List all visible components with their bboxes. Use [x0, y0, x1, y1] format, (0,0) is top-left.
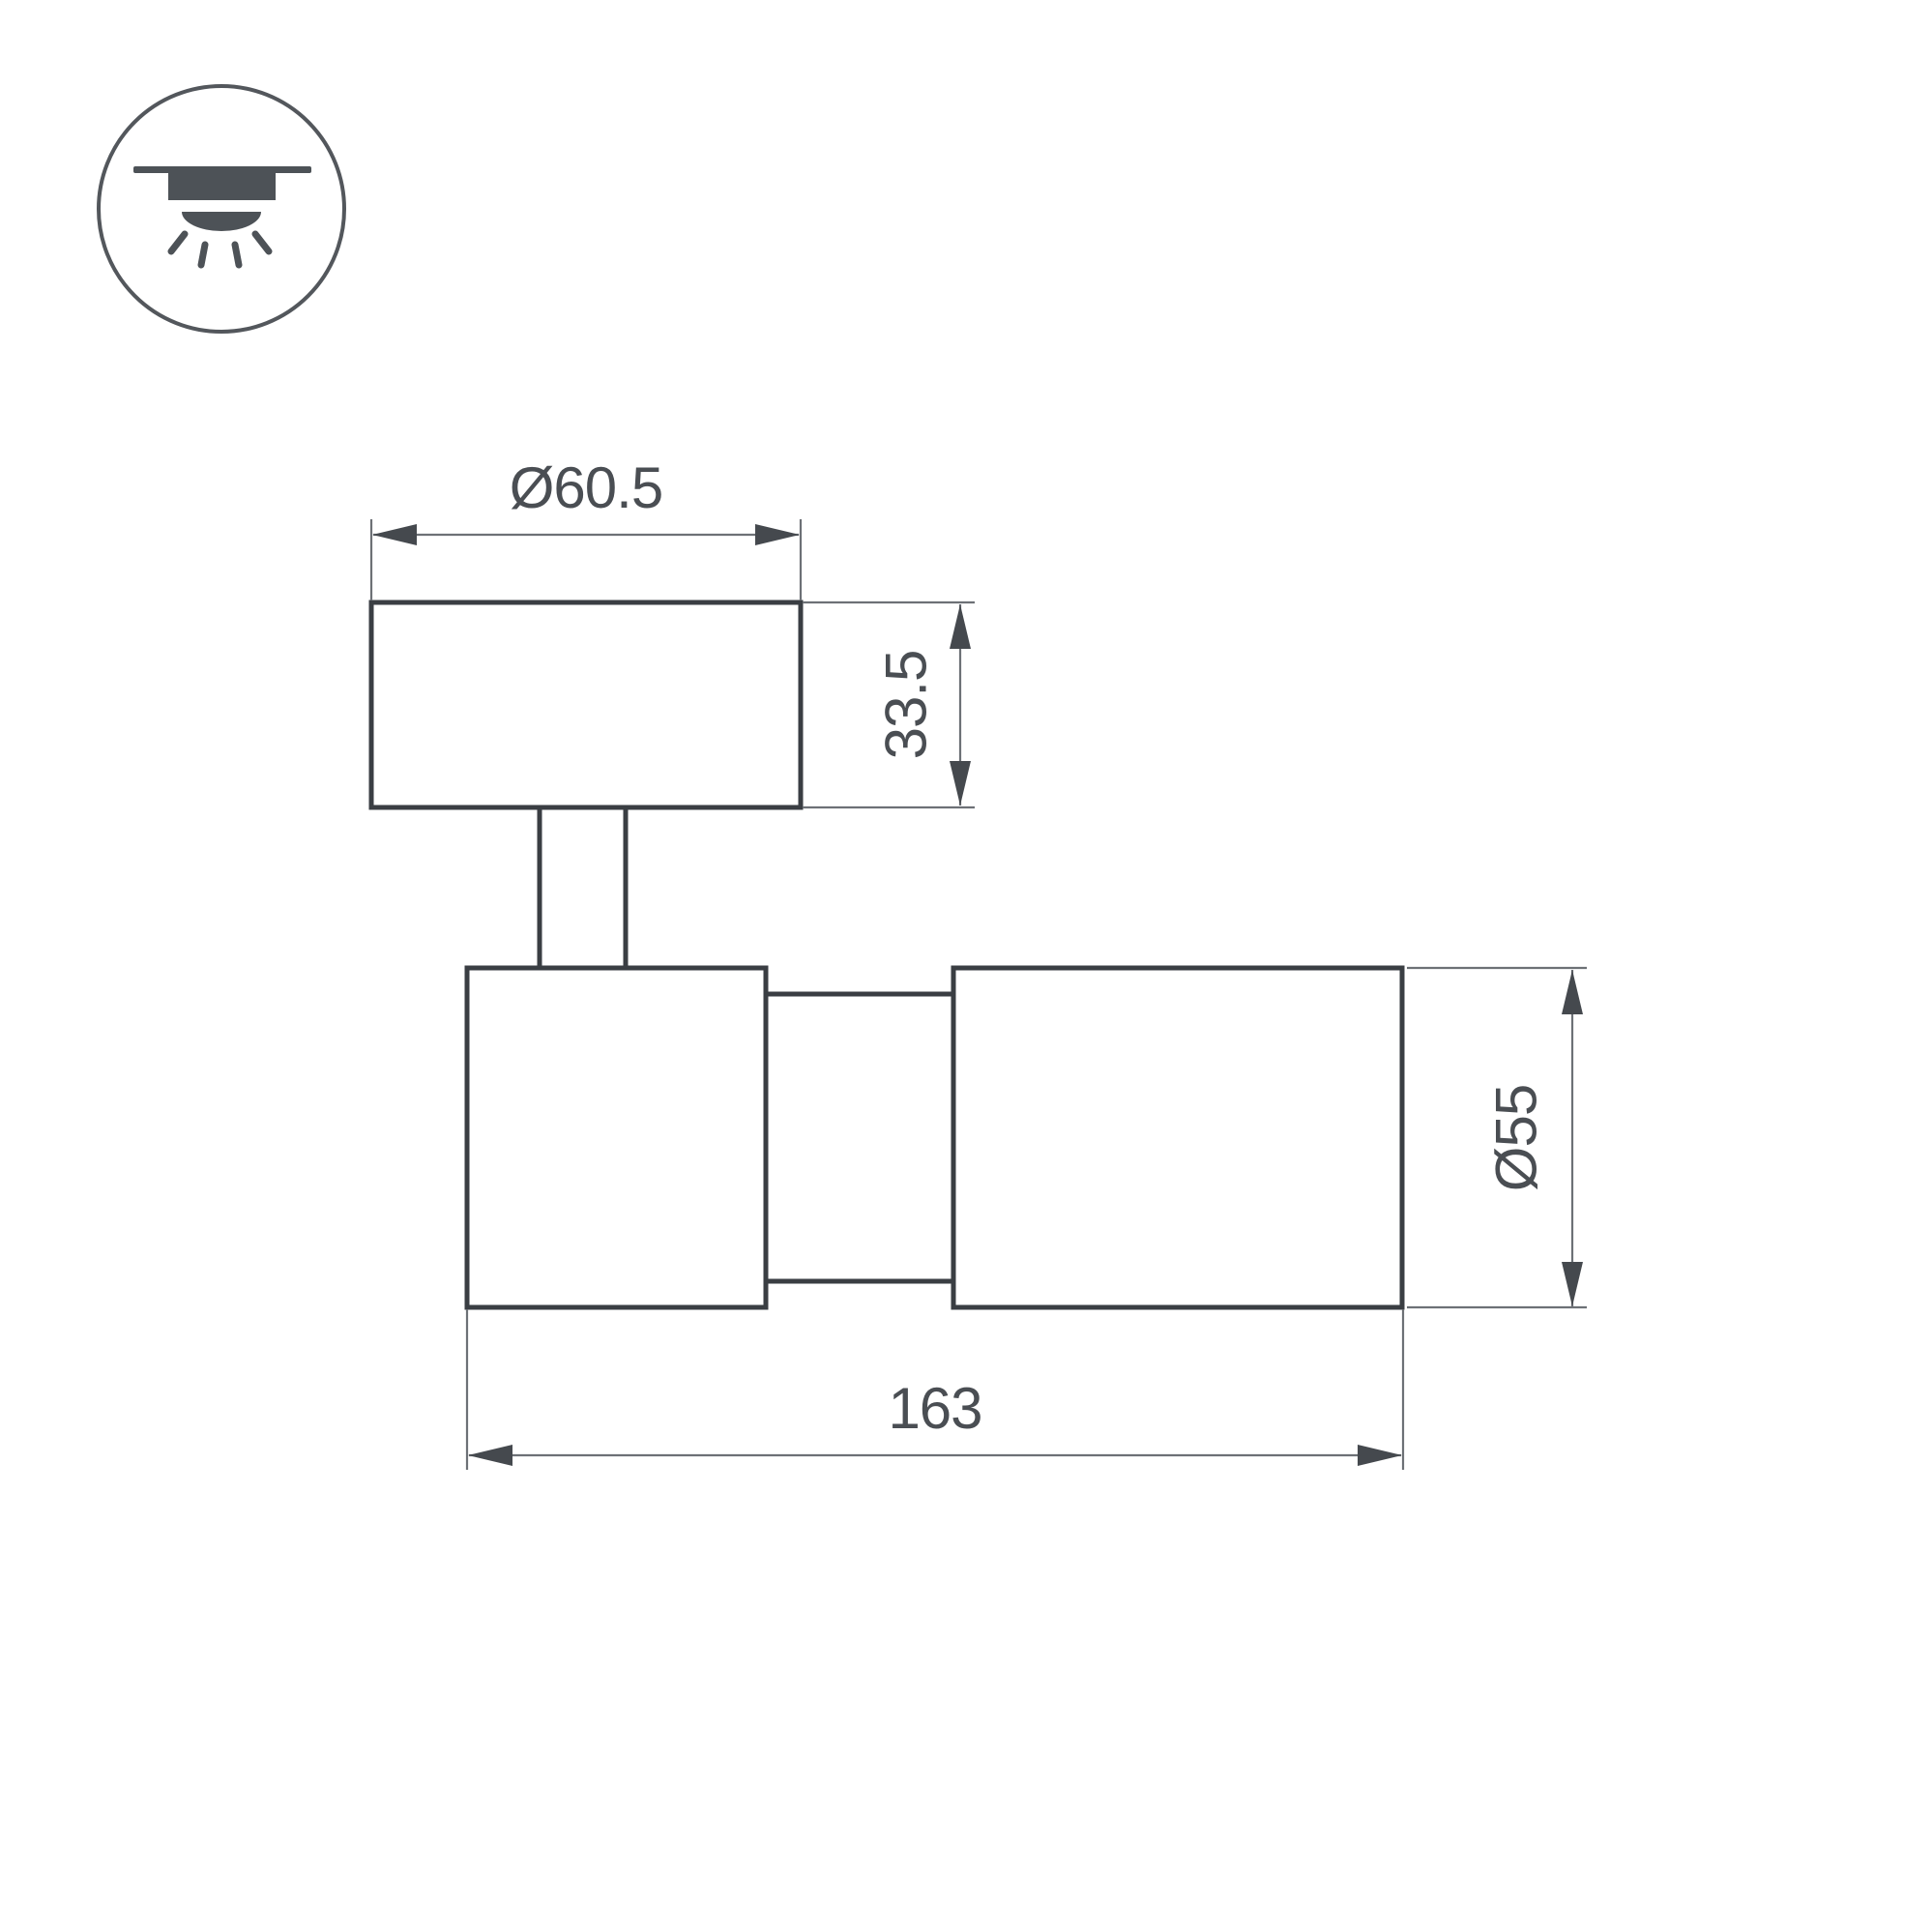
dimension-body-diameter: Ø55: [1407, 968, 1587, 1307]
dim-body-diameter-label: Ø55: [1484, 1085, 1549, 1191]
arrowhead-left: [468, 1445, 512, 1466]
body-rear-rect: [467, 968, 766, 1307]
body-front-rect: [953, 968, 1402, 1307]
dimension-base-diameter: Ø60.5: [371, 455, 801, 600]
arrowhead-right: [755, 524, 800, 545]
technical-drawing-page: Ø60.5 33.5 163 Ø55: [0, 0, 1932, 1932]
dim-body-length-label: 163: [888, 1376, 981, 1441]
icon-mount-body: [168, 173, 276, 200]
dimension-body-length: 163: [467, 1309, 1403, 1470]
arrowhead-down: [1562, 1262, 1583, 1306]
dim-base-diameter-label: Ø60.5: [510, 455, 662, 520]
icon-circle: [99, 86, 344, 332]
mounting-base-rect: [371, 602, 801, 807]
drawing-svg: Ø60.5 33.5 163 Ø55: [0, 0, 1932, 1932]
arrowhead-right: [1358, 1445, 1402, 1466]
dimension-base-height: 33.5: [803, 602, 975, 807]
icon-light-ray-inner-left: [201, 245, 205, 265]
dim-base-height-label: 33.5: [874, 651, 939, 760]
arrowhead-left: [372, 524, 417, 545]
arrowhead-up: [1562, 970, 1583, 1014]
arrowhead-down: [950, 761, 971, 805]
arrowhead-up: [950, 604, 971, 649]
icon-ceiling-bar: [133, 166, 311, 173]
icon-light-ray-inner-right: [235, 245, 239, 265]
ceiling-light-icon: [99, 86, 344, 332]
